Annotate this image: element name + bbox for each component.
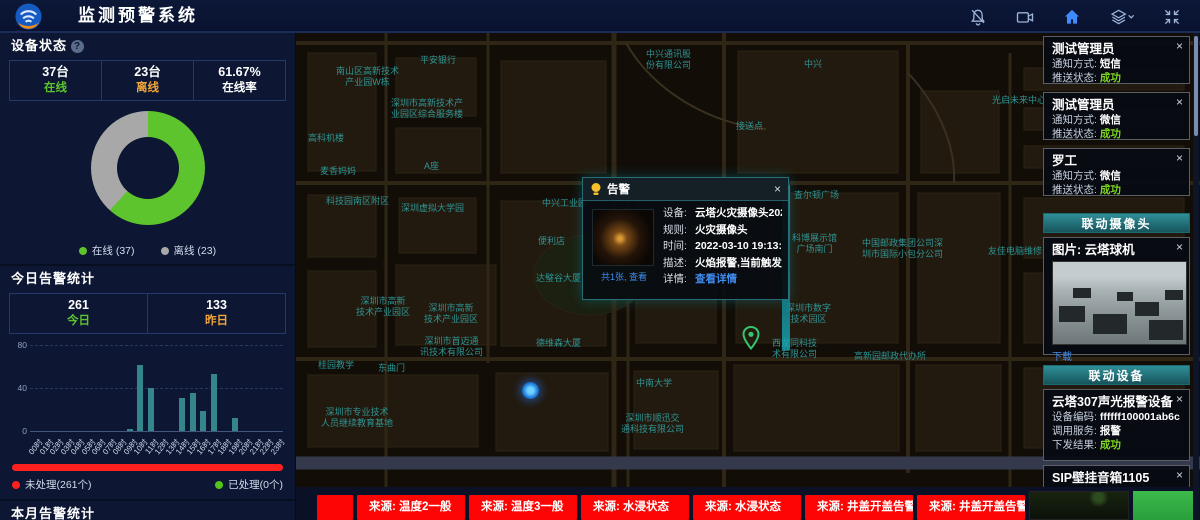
today-stat-label: 今日 <box>10 314 147 328</box>
notification-card: 罗工×通知方式: 微信推送状态: 成功 <box>1043 148 1190 196</box>
device-status-donut-chart <box>0 101 295 243</box>
right-notification-panel: 测试管理员×通知方式: 短信推送状态: 成功测试管理员×通知方式: 微信推送状态… <box>1040 33 1193 487</box>
map-place-label: 南山区高新技术 产业园W栋 <box>336 66 399 88</box>
unhandled-dot <box>12 481 20 489</box>
alarm-detail-row: 设备:云塔火灾摄像头202 <box>663 207 782 220</box>
device-stat-cell: 37台在线 <box>10 61 101 100</box>
detail-label: 设备: <box>663 207 695 220</box>
alert-ticker-item[interactable]: 来源: 水浸状态 <box>581 495 689 520</box>
y-axis-tick: 40 <box>9 383 27 393</box>
device-card: 云塔307声光报警设备×设备编码: ffffff100001ab6c调用服务: … <box>1043 389 1190 461</box>
ticker-green-image[interactable] <box>1133 491 1195 520</box>
map-place-label: 德维森大厦 <box>536 338 581 349</box>
today-stat-cell: 133昨日 <box>147 294 285 333</box>
notification-card-title: 测试管理员 <box>1052 41 1181 57</box>
map-place-label: 达璧谷大厦 <box>536 273 581 284</box>
map-place-label: 便利店 <box>538 236 565 247</box>
detail-value: 火灾摄像头 <box>695 224 748 237</box>
alert-ticker-item-partial[interactable] <box>317 495 353 520</box>
month-alarms-title: 本月告警统计 <box>0 501 295 520</box>
map-place-label: 高科机楼 <box>308 133 344 144</box>
today-stat-cell: 261今日 <box>10 294 147 333</box>
bell-off-icon[interactable] <box>968 7 988 27</box>
donut-chart <box>91 111 205 225</box>
left-stats-panel: 设备状态? 37台在线23台离线61.67%在线率 在线 (37)离线 (23)… <box>0 33 296 520</box>
layers-icon[interactable] <box>1109 7 1135 27</box>
notification-card-row: 推送状态: 成功 <box>1052 183 1181 197</box>
device-card-row: 下发结果: 成功 <box>1052 438 1181 452</box>
map-place-label: 深圳市高新 技术产业园区 <box>424 303 478 325</box>
view-details-link[interactable]: 查看详情 <box>695 273 737 286</box>
right-scrollbar[interactable] <box>1193 33 1199 520</box>
device-card: SIP壁挂音箱1105×设备编码: 1105 <box>1043 465 1190 487</box>
map-place-label: 麦香妈妈 <box>320 166 356 177</box>
alarm-popup-header: 告警 × <box>583 178 788 201</box>
detail-value: 云塔火灾摄像头202 <box>695 207 782 220</box>
alert-ticker-item[interactable]: 来源: 温度2一般 <box>357 495 465 520</box>
notification-card: 测试管理员×通知方式: 短信推送状态: 成功 <box>1043 36 1190 84</box>
snapshot-caption-link[interactable]: 共1张, 查看 <box>587 270 661 283</box>
bar <box>190 393 196 431</box>
alert-ticker-item[interactable]: 来源: 水浸状态 <box>693 495 801 520</box>
bar <box>179 398 185 431</box>
camera-card-title: 图片: 云塔球机 <box>1052 242 1181 258</box>
map-place-label: 西龙同科技 术有限公司 <box>772 338 817 360</box>
unhandled-label: 未处理(261个) <box>25 477 92 492</box>
map-place-label: 深圳市专业技术 人员继续教育基地 <box>321 407 393 429</box>
map-place-label: 中南大学 <box>636 378 672 389</box>
today-stat-value: 261 <box>10 298 147 313</box>
month-alarms-section: 本月告警统计 7631146 <box>0 499 295 520</box>
scrollbar-thumb[interactable] <box>1194 36 1198 136</box>
notification-card-close-icon[interactable]: × <box>1176 40 1183 52</box>
header-icon-bar <box>968 0 1182 33</box>
handled-label: 已处理(0个) <box>228 477 283 492</box>
alarm-detail-row: 规则:火灾摄像头 <box>663 224 782 237</box>
legend-item: 离线 (23) <box>161 243 217 258</box>
today-stat-label: 昨日 <box>148 314 285 328</box>
alarm-detail-row: 描述:火焰报警,当前触发值为... <box>663 257 782 270</box>
popup-close-icon[interactable]: × <box>774 183 781 195</box>
device-status-stats: 37台在线23台离线61.67%在线率 <box>9 60 286 101</box>
map-place-label: 深圳市高新技术产 业园区综合服务楼 <box>391 98 463 120</box>
video-camera-icon[interactable] <box>1015 7 1035 27</box>
map-place-label: 科博展示馆 广场南门 <box>792 233 837 255</box>
fullscreen-icon[interactable] <box>1162 7 1182 27</box>
map-place-label: 深圳市顺迅交 通科技有限公司 <box>621 413 684 435</box>
device-card-row: 调用服务: 报警 <box>1052 424 1181 438</box>
ticker-snapshot-image[interactable] <box>1029 491 1129 520</box>
map-place-label: 查尔顿广场 <box>794 190 839 201</box>
today-alarm-stats: 261今日133昨日 <box>9 293 286 334</box>
detail-value: 2022-03-10 19:13:07 <box>695 240 782 253</box>
device-stat-value: 37台 <box>10 65 101 80</box>
notification-card-title: 测试管理员 <box>1052 97 1181 113</box>
notification-card-row: 推送状态: 成功 <box>1052 127 1181 141</box>
device-card-row: 设备编码: ffffff100001ab6c <box>1052 410 1181 424</box>
page-title: 监测预警系统 <box>78 0 198 32</box>
legend-dot <box>161 247 169 255</box>
app-logo-icon <box>14 2 43 31</box>
map-place-label: 中兴 <box>804 59 822 70</box>
notification-card-row: 推送状态: 成功 <box>1052 71 1181 85</box>
bar <box>232 418 238 431</box>
linked-devices-header[interactable]: 联动设备 <box>1043 365 1190 385</box>
map-place-label: 桂园教学 <box>318 360 354 371</box>
notification-card-close-icon[interactable]: × <box>1176 152 1183 164</box>
notification-card-row: 通知方式: 微信 <box>1052 169 1181 183</box>
map-place-label: 深圳市数字 技术园区 <box>786 303 831 325</box>
detail-value: 火焰报警,当前触发值为... <box>695 257 782 270</box>
map-place-label: 高新园邮政代办所 <box>854 351 926 362</box>
detail-label: 时间: <box>663 240 695 253</box>
alarm-popup: 告警 × 共1张, 查看 设备:云塔火灾摄像头202规则:火灾摄像头时间:202… <box>582 177 789 300</box>
detail-label: 描述: <box>663 257 695 270</box>
device-location-dot[interactable] <box>522 382 539 399</box>
map-place-label: 深圳市高新 技术产业园区 <box>356 296 410 318</box>
device-stat-cell: 61.67%在线率 <box>193 61 285 100</box>
device-stat-label: 在线 <box>10 81 101 95</box>
today-alarms-title: 今日告警统计 <box>0 266 295 291</box>
legend-dot <box>79 247 87 255</box>
gridline <box>30 388 283 389</box>
device-stat-value: 23台 <box>102 65 193 80</box>
alarm-detail-row: 详情:查看详情 <box>663 273 782 286</box>
home-icon[interactable] <box>1062 7 1082 27</box>
alarm-lamp-icon <box>590 182 602 196</box>
device-card-close-icon[interactable]: × <box>1176 469 1183 481</box>
legend-item: 在线 (37) <box>79 243 135 258</box>
map-place-label: 友佳电脑维修 <box>988 246 1042 257</box>
alarm-detail-row: 时间:2022-03-10 19:13:07 <box>663 240 782 253</box>
device-status-title: 设备状态? <box>0 33 295 58</box>
notification-card-close-icon[interactable]: × <box>1176 96 1183 108</box>
linked-camera-card: 图片: 云塔球机 × 下载 <box>1043 237 1190 355</box>
notification-card: 测试管理员×通知方式: 微信推送状态: 成功 <box>1043 92 1190 140</box>
device-stat-label: 在线率 <box>194 81 285 95</box>
alert-ticker-item[interactable]: 来源: 井盖开盖告警 <box>805 495 913 520</box>
handled-dot <box>215 481 223 489</box>
device-stat-value: 61.67% <box>194 65 285 80</box>
bar <box>137 365 143 431</box>
notification-card-row: 通知方式: 短信 <box>1052 57 1181 71</box>
camera-card-close-icon[interactable]: × <box>1176 241 1183 253</box>
alert-ticker-bar: 来源: 温度2一般来源: 温度3一般来源: 水浸状态来源: 水浸状态来源: 井盖… <box>296 487 1200 520</box>
notification-card-row: 通知方式: 微信 <box>1052 113 1181 127</box>
bar <box>127 429 133 431</box>
alarm-detail-rows: 设备:云塔火灾摄像头202规则:火灾摄像头时间:2022-03-10 19:13… <box>663 207 782 290</box>
camera-snapshot-image[interactable] <box>1052 261 1187 345</box>
map-place-label: 深圳虚拟大学园 <box>401 203 464 214</box>
chevron-down-icon <box>1129 15 1134 17</box>
map-place-label: 中国邮政集团公司深 圳市国际小包分公司 <box>862 238 943 260</box>
device-card-title: SIP壁挂音箱1105 <box>1052 470 1181 486</box>
gridline <box>30 345 283 346</box>
map-place-label: 平安银行 <box>420 55 456 66</box>
gridline <box>30 431 283 432</box>
device-card-title: 云塔307声光报警设备 <box>1052 394 1181 410</box>
legend-label: 在线 (37) <box>92 243 135 258</box>
hourly-alarm-bar-chart: 0408000时01时02时03时04时05时06时07时08时09时10时11… <box>6 337 289 455</box>
device-stat-cell: 23台离线 <box>101 61 193 100</box>
help-icon[interactable]: ? <box>71 40 84 53</box>
notification-card-title: 罗工 <box>1052 153 1181 169</box>
top-header: 监测预警系统 <box>0 0 1200 33</box>
map-place-label: 深圳市首迈通 讯技术有限公司 <box>420 336 483 358</box>
alarm-popup-title: 告警 <box>607 181 769 197</box>
linked-camera-header[interactable]: 联动摄像头 <box>1043 213 1190 233</box>
legend-label: 离线 (23) <box>174 243 217 258</box>
alert-ticker-item[interactable]: 来源: 井盖开盖告警 <box>917 495 1025 520</box>
y-axis-tick: 0 <box>9 426 27 436</box>
map-place-label: 中兴工业园 <box>542 198 587 209</box>
today-stat-value: 133 <box>148 298 285 313</box>
map-place-label: A座 <box>424 161 439 172</box>
processing-legend: 未处理(261个) 已处理(0个) <box>12 477 283 492</box>
alert-ticker-item[interactable]: 来源: 温度3一般 <box>469 495 577 520</box>
map-place-label: 光启未来中心 <box>992 95 1046 106</box>
map-place-label: 东曲门 <box>378 363 405 374</box>
y-axis-tick: 80 <box>9 340 27 350</box>
detail-label: 规则: <box>663 224 695 237</box>
monitoring-dashboard: 监测预警系统 <box>0 0 1200 520</box>
device-stat-label: 离线 <box>102 81 193 95</box>
map-place-label: 科技园南区附区 <box>326 196 389 207</box>
bar <box>148 388 154 431</box>
map-place-label: 中兴通讯股 份有限公司 <box>646 49 691 71</box>
download-link[interactable]: 下载 <box>1052 348 1072 363</box>
donut-legend: 在线 (37)离线 (23) <box>0 243 295 258</box>
detail-label: 详情: <box>663 273 695 286</box>
unhandled-progress-bar <box>12 464 283 471</box>
device-card-close-icon[interactable]: × <box>1176 393 1183 405</box>
map-place-label: 接送点 <box>736 121 763 132</box>
alarm-snapshot-image[interactable] <box>592 209 654 266</box>
bar <box>211 374 217 431</box>
alarm-location-pin[interactable] <box>742 326 760 350</box>
bar <box>200 411 206 431</box>
